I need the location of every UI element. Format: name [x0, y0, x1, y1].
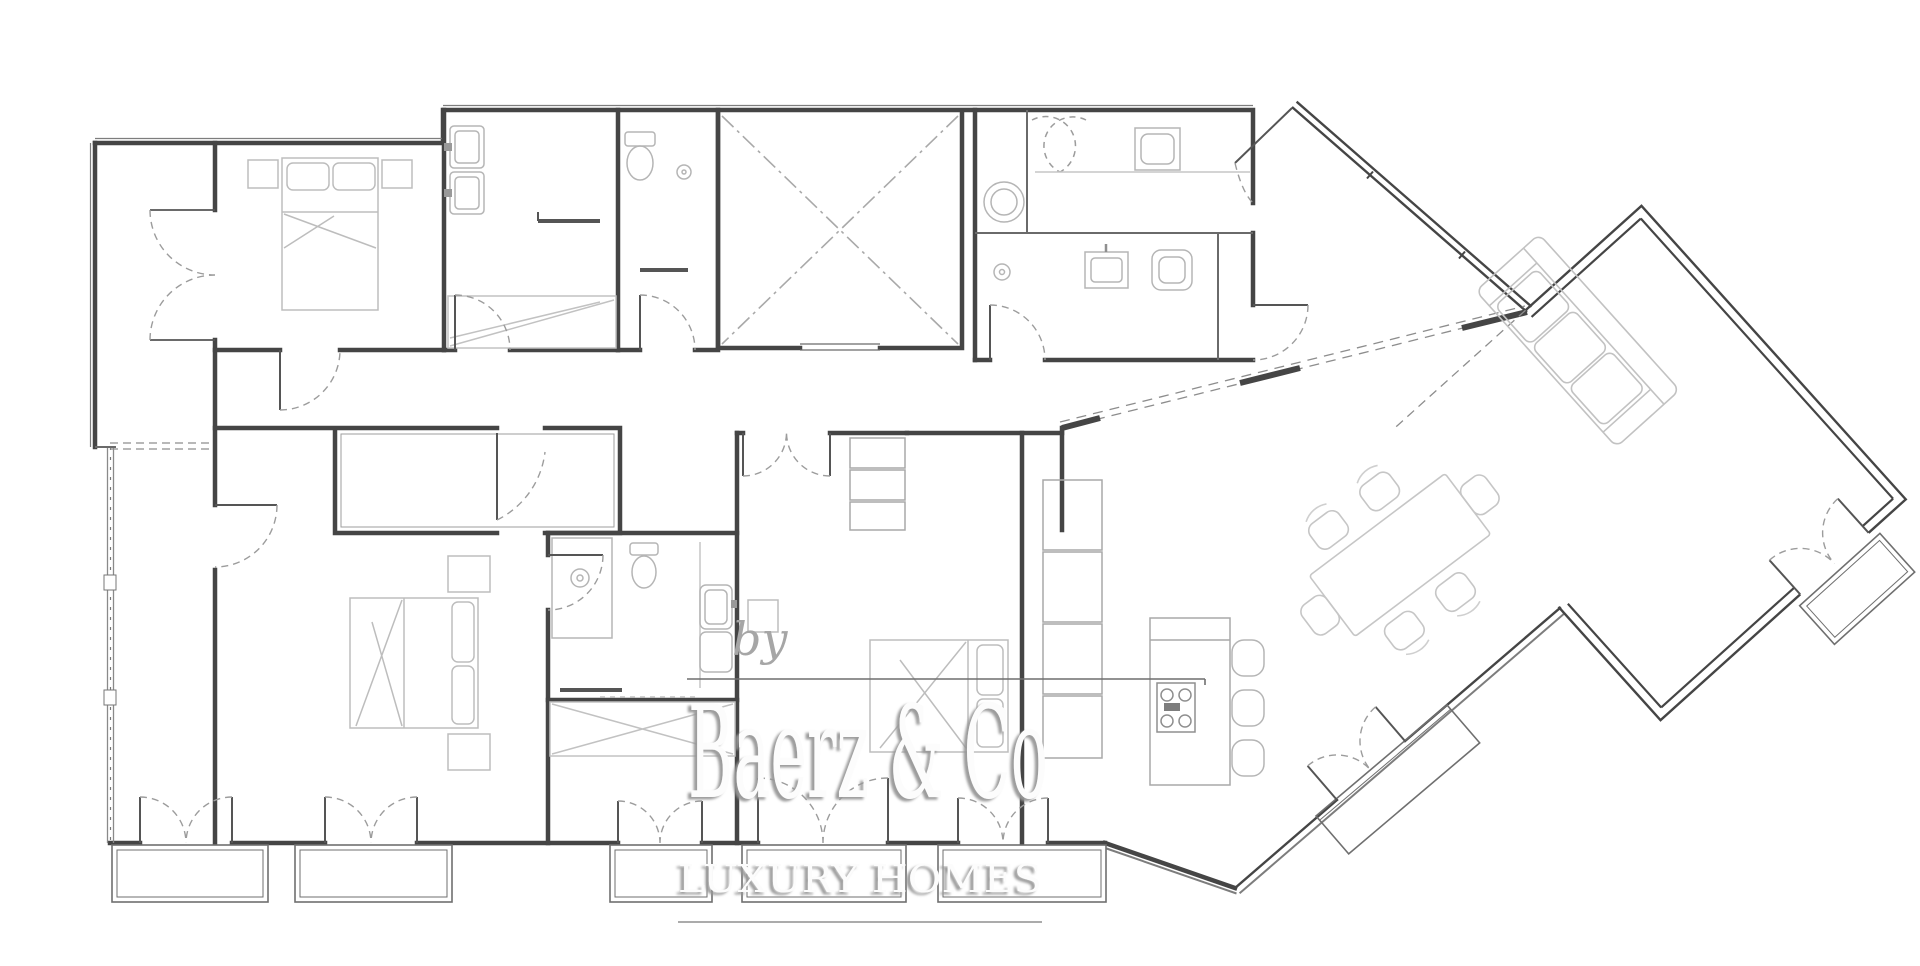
left-glazing — [95, 443, 215, 843]
beam-line — [1060, 306, 1527, 428]
bathroom-1 — [444, 126, 616, 348]
closet-sliding — [448, 296, 616, 348]
floor-plan-page: by Baerz & Co LUXURY HOMES — [0, 0, 1920, 966]
sofa — [1476, 234, 1680, 447]
bedroom-1 — [248, 158, 412, 310]
living-balcony — [1800, 533, 1915, 644]
floor-plan-canvas: by Baerz & Co LUXURY HOMES — [0, 0, 1920, 966]
bar-stools — [1232, 640, 1264, 776]
bathroom-suite — [984, 116, 1250, 290]
kitchen-island — [1150, 618, 1230, 785]
nightstand — [448, 734, 490, 770]
living-room — [1364, 171, 1920, 765]
kitchen — [1043, 480, 1264, 785]
bedroom-2 — [350, 556, 490, 770]
watermark-brand: Baerz & Co — [688, 679, 1048, 828]
kitchen-cabinets — [1043, 480, 1102, 758]
dining-balcony — [1316, 705, 1480, 854]
elevator-shaft — [722, 116, 958, 344]
entry-angled-wall — [1292, 102, 1532, 312]
wc-room — [625, 132, 691, 270]
bed-1 — [282, 158, 378, 310]
living-balcony-door — [1769, 499, 1868, 595]
nightstand — [448, 556, 490, 592]
nightstand — [248, 160, 278, 188]
nightstand — [382, 160, 412, 188]
dining-table — [1255, 416, 1544, 695]
closet-cubbies — [850, 438, 905, 530]
watermark-prefix: by — [732, 612, 788, 666]
bed-2 — [350, 598, 478, 728]
dining-area — [1255, 416, 1544, 854]
closet-strip-doors — [150, 210, 215, 340]
watermark-tagline: LUXURY HOMES — [678, 857, 1042, 901]
watermark: by Baerz & Co LUXURY HOMES — [678, 612, 1205, 922]
